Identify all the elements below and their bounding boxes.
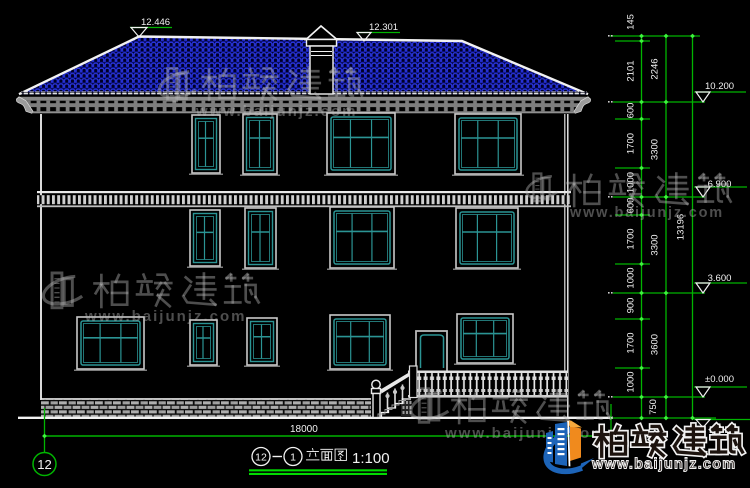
svg-text:www.baijunjz.com: www.baijunjz.com: [569, 205, 724, 221]
svg-text:www.baijunjz.com: www.baijunjz.com: [195, 103, 357, 120]
svg-text:750: 750: [648, 399, 659, 415]
svg-text:1700: 1700: [626, 332, 637, 353]
svg-text:2246: 2246: [650, 58, 661, 79]
svg-text:2101: 2101: [626, 60, 637, 81]
svg-text:1000: 1000: [626, 371, 637, 392]
svg-text:145: 145: [626, 14, 637, 30]
svg-text:www.baijunjz.com: www.baijunjz.com: [591, 457, 736, 473]
svg-text:3300: 3300: [650, 234, 661, 255]
svg-text:±0.000: ±0.000: [705, 374, 734, 385]
svg-text:12.446: 12.446: [141, 17, 170, 28]
svg-text:12: 12: [37, 457, 51, 472]
svg-text:1000: 1000: [626, 267, 637, 288]
svg-text:www.baijunjz.com: www.baijunjz.com: [84, 308, 246, 325]
svg-text:3300: 3300: [650, 139, 661, 160]
svg-text:600: 600: [626, 103, 637, 119]
svg-text:900: 900: [626, 298, 637, 314]
svg-text:18000: 18000: [290, 424, 318, 435]
svg-text:3.600: 3.600: [705, 273, 731, 284]
svg-text:3600: 3600: [650, 334, 661, 355]
svg-text:1700: 1700: [626, 133, 637, 154]
svg-text:1700: 1700: [626, 228, 637, 249]
svg-text:1: 1: [290, 452, 296, 464]
svg-text:10.200: 10.200: [705, 81, 734, 92]
svg-text:12.301: 12.301: [369, 22, 398, 33]
svg-text:12: 12: [255, 452, 267, 464]
svg-text:1:100: 1:100: [352, 450, 390, 467]
svg-text:www.baijunjz.com: www.baijunjz.com: [444, 425, 606, 442]
